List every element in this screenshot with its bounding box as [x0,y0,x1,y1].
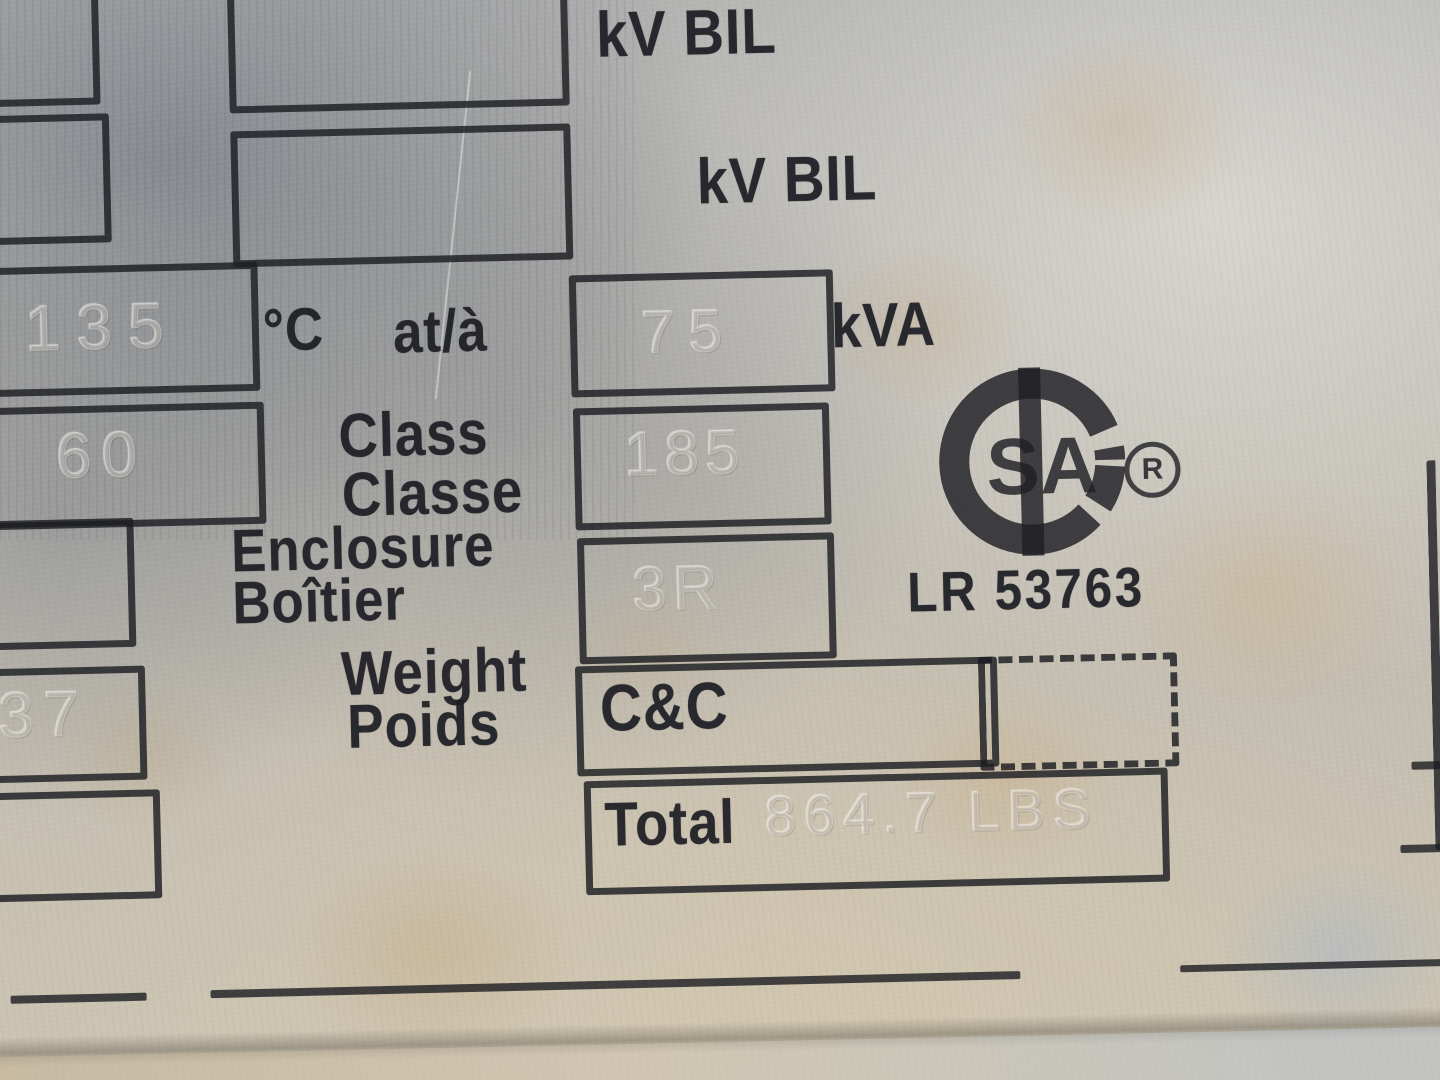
class-stamp: 185 [623,421,746,486]
field-box-left-2 [0,113,112,246]
nameplate-photo: kV BIL kV BIL °C at/à kVA Class Classe E… [0,0,1440,1080]
printed-nameplate-layer: kV BIL kV BIL °C at/à kVA Class Classe E… [0,0,1440,1080]
field-box-left-7 [0,789,162,903]
left-column-stamp: 37 [0,681,90,747]
border-stub-right-2 [1400,844,1440,853]
weight-cc-label: C&C [599,672,729,741]
field-box-bil-1 [226,0,569,113]
total-weight-stamp: 864.7 LBS [764,780,1099,844]
total-label: Total [604,792,736,857]
field-box-right-partial [1426,459,1440,851]
registered-trademark-icon: R [1124,441,1181,498]
enclosure-stamp: 3R [631,557,724,621]
temp-unit-label: °C [262,299,324,360]
bottom-border-segment-2 [210,971,1020,998]
bil-2-label: kV BIL [696,145,878,213]
temp-rise-stamp: 135 [24,293,180,361]
csa-logo-icon: SA [930,357,1135,566]
bottom-border-segment-3 [1180,959,1440,972]
kva-stamp: 75 [640,301,736,363]
border-stub-right-1 [1411,761,1440,770]
frequency-stamp: 60 [55,421,148,487]
field-box-left-1 [0,0,101,108]
bottom-border-segment-1 [11,993,147,1004]
csa-file-number: LR 53763 [907,559,1146,621]
enclosure-label-fr: Boîtier [232,569,407,633]
kva-unit-label: kVA [830,294,936,358]
field-box-weight-right [978,652,1180,771]
field-box-left-5 [0,518,136,651]
bil-1-label: kV BIL [595,0,777,67]
temp-at-label: at/à [392,300,488,362]
field-box-bil-2 [230,123,573,267]
weight-label-fr: Poids [347,693,501,759]
